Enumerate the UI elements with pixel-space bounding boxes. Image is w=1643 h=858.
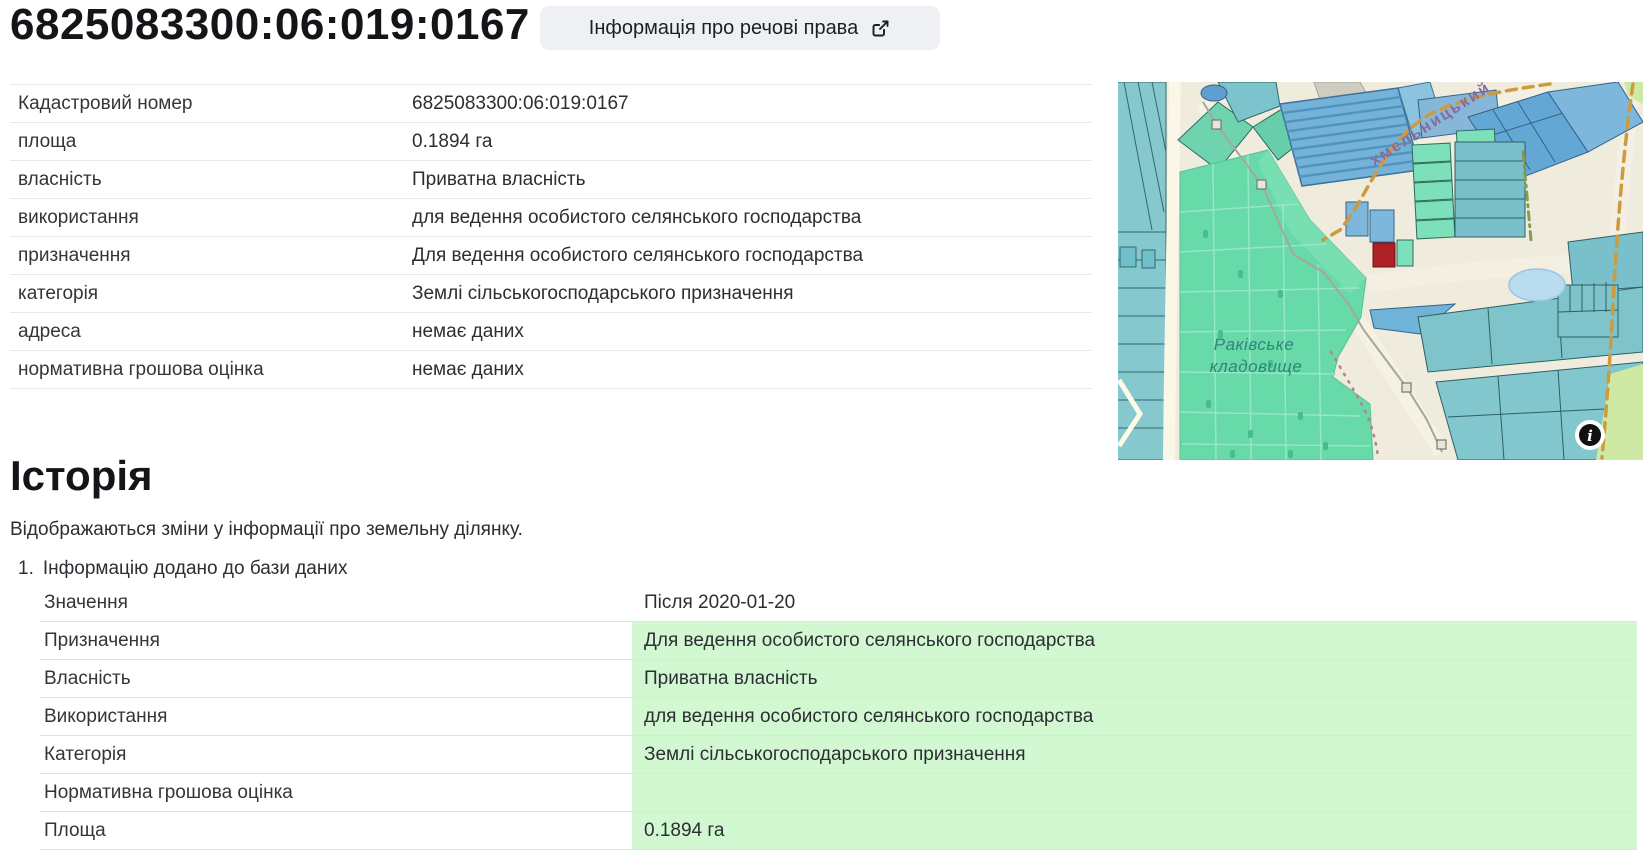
selected-parcel[interactable] — [1373, 243, 1395, 267]
history-heading: Історія — [10, 450, 153, 502]
table-row: адреса немає даних — [10, 313, 1092, 351]
row-value-highlighted — [632, 774, 1637, 811]
row-value: Землі сільськогосподарського призначення — [412, 283, 1092, 305]
row-value: 6825083300:06:019:0167 — [412, 93, 1092, 115]
row-label: використання — [10, 207, 412, 229]
history-row: Площа 0.1894 га — [40, 812, 1637, 850]
row-value: Після 2020-01-20 — [632, 584, 1637, 621]
svg-text:i: i — [1587, 427, 1593, 445]
history-row: Значення Після 2020-01-20 — [40, 584, 1637, 622]
row-value-highlighted: Для ведення особистого селянського госпо… — [632, 622, 1637, 659]
history-row: Призначення Для ведення особистого селян… — [40, 622, 1637, 660]
page-title: 6825083300:06:019:0167 — [10, 0, 530, 50]
history-description: Відображаються зміни у інформації про зе… — [10, 519, 523, 541]
history-entry-title: 1. Інформацію додано до бази даних — [18, 558, 347, 580]
map-parcels-left — [1118, 82, 1166, 460]
table-row: Кадастровий номер 6825083300:06:019:0167 — [10, 85, 1092, 123]
property-rights-button[interactable]: Інформація про речові права — [540, 6, 940, 50]
map-info-icon[interactable]: i — [1575, 420, 1605, 450]
row-label: Використання — [40, 698, 632, 735]
external-link-icon — [870, 18, 891, 39]
entry-title-text: Інформацію додано до бази даних — [43, 558, 348, 580]
row-label: власність — [10, 169, 412, 191]
row-label: нормативна грошова оцінка — [10, 359, 412, 381]
table-row: нормативна грошова оцінка немає даних — [10, 351, 1092, 389]
table-row: площа 0.1894 га — [10, 123, 1092, 161]
parcel-details-table: Кадастровий номер 6825083300:06:019:0167… — [10, 84, 1092, 389]
history-row: Власність Приватна власність — [40, 660, 1637, 698]
row-value-highlighted: Приватна власність — [632, 660, 1637, 697]
table-row: категорія Землі сільськогосподарського п… — [10, 275, 1092, 313]
cemetery-label-line2: кладовище — [1210, 357, 1303, 376]
row-value: Приватна власність — [412, 169, 1092, 191]
history-row: Категорія Землі сільськогосподарського п… — [40, 736, 1637, 774]
table-row: призначення Для ведення особистого селян… — [10, 237, 1092, 275]
row-label: Значення — [40, 584, 632, 621]
history-table: Значення Після 2020-01-20 Призначення Дл… — [40, 584, 1637, 850]
row-label: Нормативна грошова оцінка — [40, 774, 632, 811]
row-label: Кадастровий номер — [10, 93, 412, 115]
row-label: Призначення — [40, 622, 632, 659]
table-row: власність Приватна власність — [10, 161, 1092, 199]
row-value: для ведення особистого селянського госпо… — [412, 207, 1092, 229]
row-value: немає даних — [412, 359, 1092, 381]
history-row: Нормативна грошова оцінка — [40, 774, 1637, 812]
row-label: категорія — [10, 283, 412, 305]
row-value: Для ведення особистого селянського госпо… — [412, 245, 1092, 267]
history-row: Використання для ведення особистого селя… — [40, 698, 1637, 736]
map-pond — [1509, 269, 1565, 301]
row-label: Власність — [40, 660, 632, 697]
row-value: 0.1894 га — [412, 131, 1092, 153]
row-value-highlighted: 0.1894 га — [632, 812, 1637, 849]
row-value-highlighted: для ведення особистого селянського госпо… — [632, 698, 1637, 735]
row-label: Площа — [40, 812, 632, 849]
table-row: використання для ведення особистого селя… — [10, 199, 1092, 237]
property-rights-button-label: Інформація про речові права — [589, 17, 858, 40]
row-label: адреса — [10, 321, 412, 343]
row-label: призначення — [10, 245, 412, 267]
row-label: Категорія — [40, 736, 632, 773]
row-value: немає даних — [412, 321, 1092, 343]
row-value-highlighted: Землі сільськогосподарського призначення — [632, 736, 1637, 773]
entry-number: 1. — [18, 558, 34, 580]
cemetery-label-line1: Раківське — [1214, 335, 1295, 354]
row-label: площа — [10, 131, 412, 153]
cadastral-map[interactable]: Раківське кладовище хмельницький i — [1118, 82, 1643, 460]
